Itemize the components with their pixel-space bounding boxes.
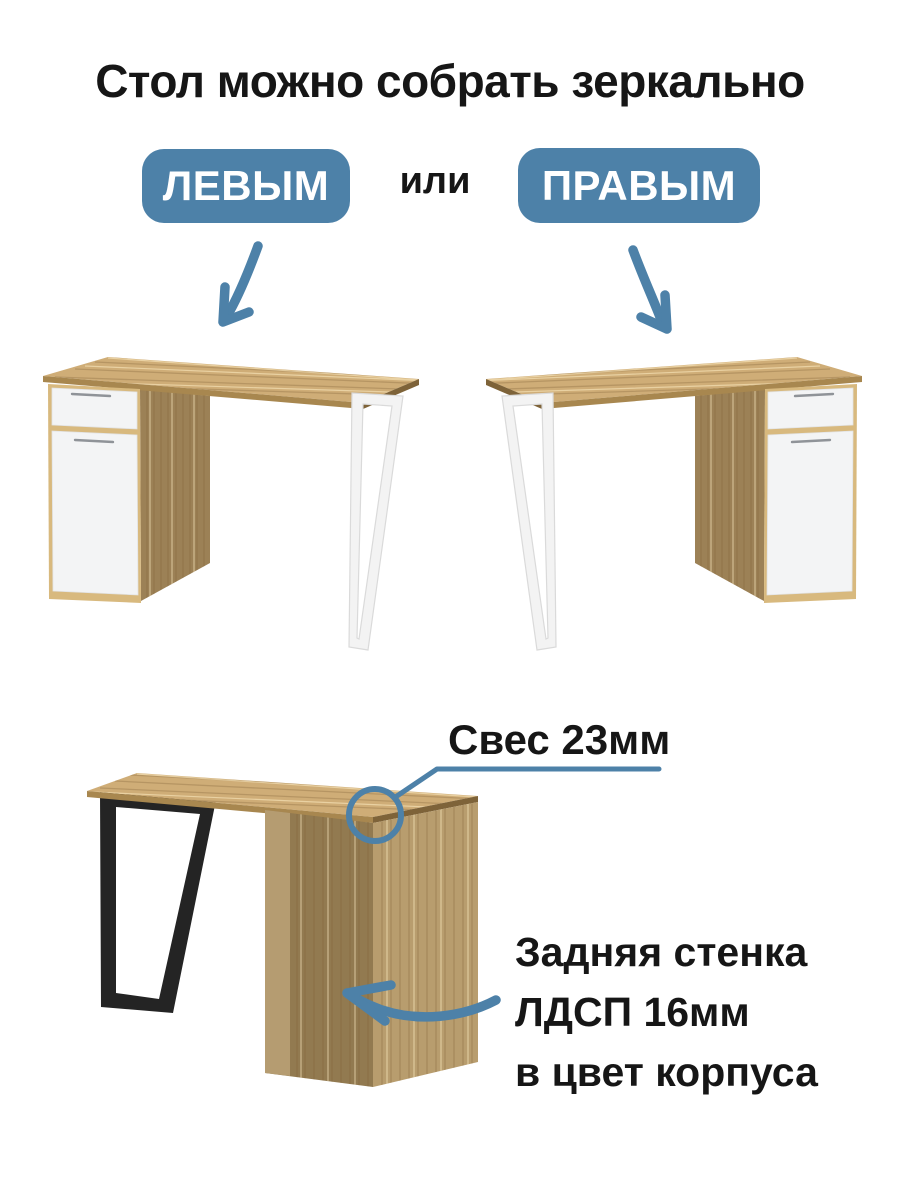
right-option-label: ПРАВЫМ <box>542 162 736 210</box>
desk-back-illustration <box>85 773 478 1087</box>
door-front <box>52 431 138 595</box>
overhang-label: Свес 23мм <box>448 716 670 764</box>
arrow-down-left-icon <box>223 246 258 322</box>
pedestal-side-edge <box>265 810 290 1076</box>
metal-loop-leg-white <box>349 393 403 650</box>
arrow-down-right-icon <box>633 250 667 329</box>
page-title: Стол можно собрать зеркально <box>0 54 900 108</box>
desk-right-illustration <box>473 357 865 650</box>
infographic-page: Стол можно собрать зеркально ЛЕВЫМ или П… <box>0 0 900 1200</box>
or-separator: или <box>383 160 487 203</box>
back-panel-note-line2: ЛДСП 16мм <box>515 982 818 1042</box>
left-option-badge: ЛЕВЫМ <box>142 149 350 223</box>
pedestal-right-side <box>373 802 478 1087</box>
metal-loop-leg-black <box>100 792 216 1013</box>
right-option-badge: ПРАВЫМ <box>518 148 760 223</box>
left-option-label: ЛЕВЫМ <box>163 162 329 210</box>
back-panel-note-line3: в цвет корпуса <box>515 1042 818 1102</box>
back-panel-note-line1: Задняя стенка <box>515 922 818 982</box>
back-panel-note: Задняя стенка ЛДСП 16мм в цвет корпуса <box>515 922 818 1102</box>
desk-left-illustration <box>40 357 432 650</box>
